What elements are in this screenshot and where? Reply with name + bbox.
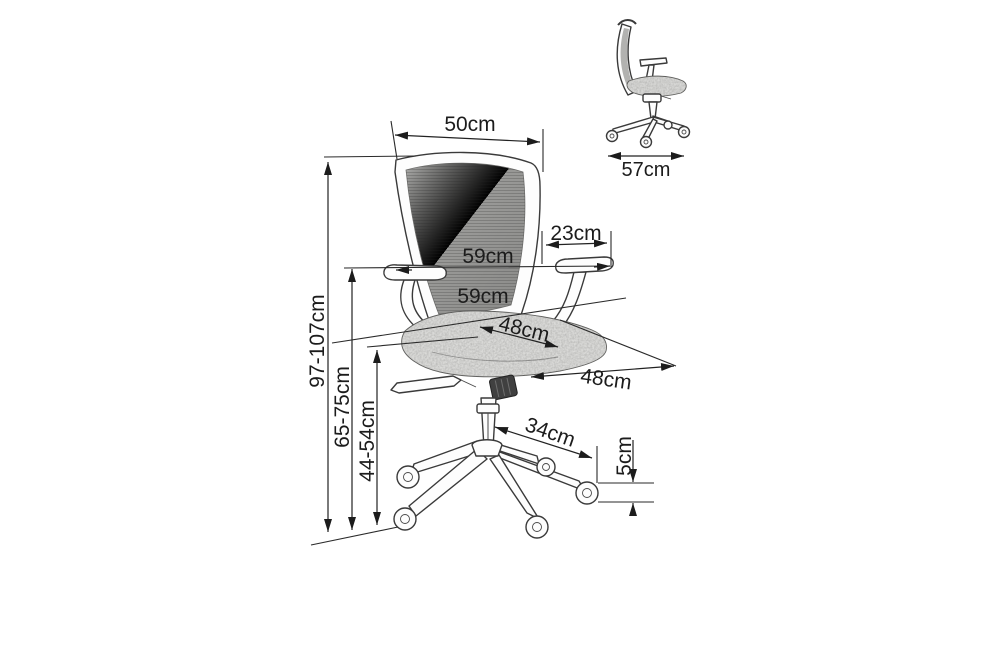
dimension-label-overall-depth: 57cm: [622, 159, 671, 181]
dimension-label-overall-height: 97-107cm: [306, 294, 329, 387]
caster: [526, 516, 548, 538]
dimension-label-overall-width-bottom: 59cm: [457, 285, 508, 308]
main-chair-drawing: [384, 152, 613, 538]
height-knob: [489, 375, 518, 401]
inset-backrest-top: [618, 20, 636, 25]
inset-mechanism: [643, 94, 661, 102]
inset-base: [607, 116, 690, 148]
inset-seat: [627, 76, 686, 96]
dimension-label-base-radius: 34cm: [522, 413, 578, 451]
dimension-overall-depth: 57cm: [608, 156, 684, 181]
armrest-right-pad: [556, 257, 614, 273]
dimension-overall-width-top: 59cm: [344, 245, 610, 270]
dimension-label-caster-height: 5cm: [613, 436, 636, 476]
side-view-inset: [607, 20, 690, 148]
ground-line: [311, 527, 398, 545]
dimension-label-seat-depth: 48cm: [579, 365, 633, 395]
dimension-label-armrest-length: 23cm: [550, 222, 601, 245]
dimension-label-backrest-width: 50cm: [444, 113, 495, 136]
dimension-label-seat-height: 44-54cm: [356, 400, 379, 482]
tilt-lever: [391, 376, 476, 393]
dimension-label-overall-width-top: 59cm: [462, 245, 513, 268]
caster: [537, 458, 555, 476]
dimension-armrest-height: 65-75cm: [331, 269, 354, 530]
caster: [397, 466, 419, 488]
caster: [576, 482, 598, 504]
dimension-label-armrest-height: 65-75cm: [331, 366, 354, 448]
base-legs: [409, 440, 585, 519]
diagram-canvas: 50cm 97-107cm 65-75cm 44-54cm 59cm 59cm …: [0, 0, 1000, 667]
dimension-caster-height: 5cm: [598, 436, 654, 514]
chair-dimension-diagram: 50cm 97-107cm 65-75cm 44-54cm 59cm 59cm …: [0, 0, 1000, 667]
armrest-right-support: [553, 272, 586, 326]
inset-lever: [661, 96, 671, 99]
